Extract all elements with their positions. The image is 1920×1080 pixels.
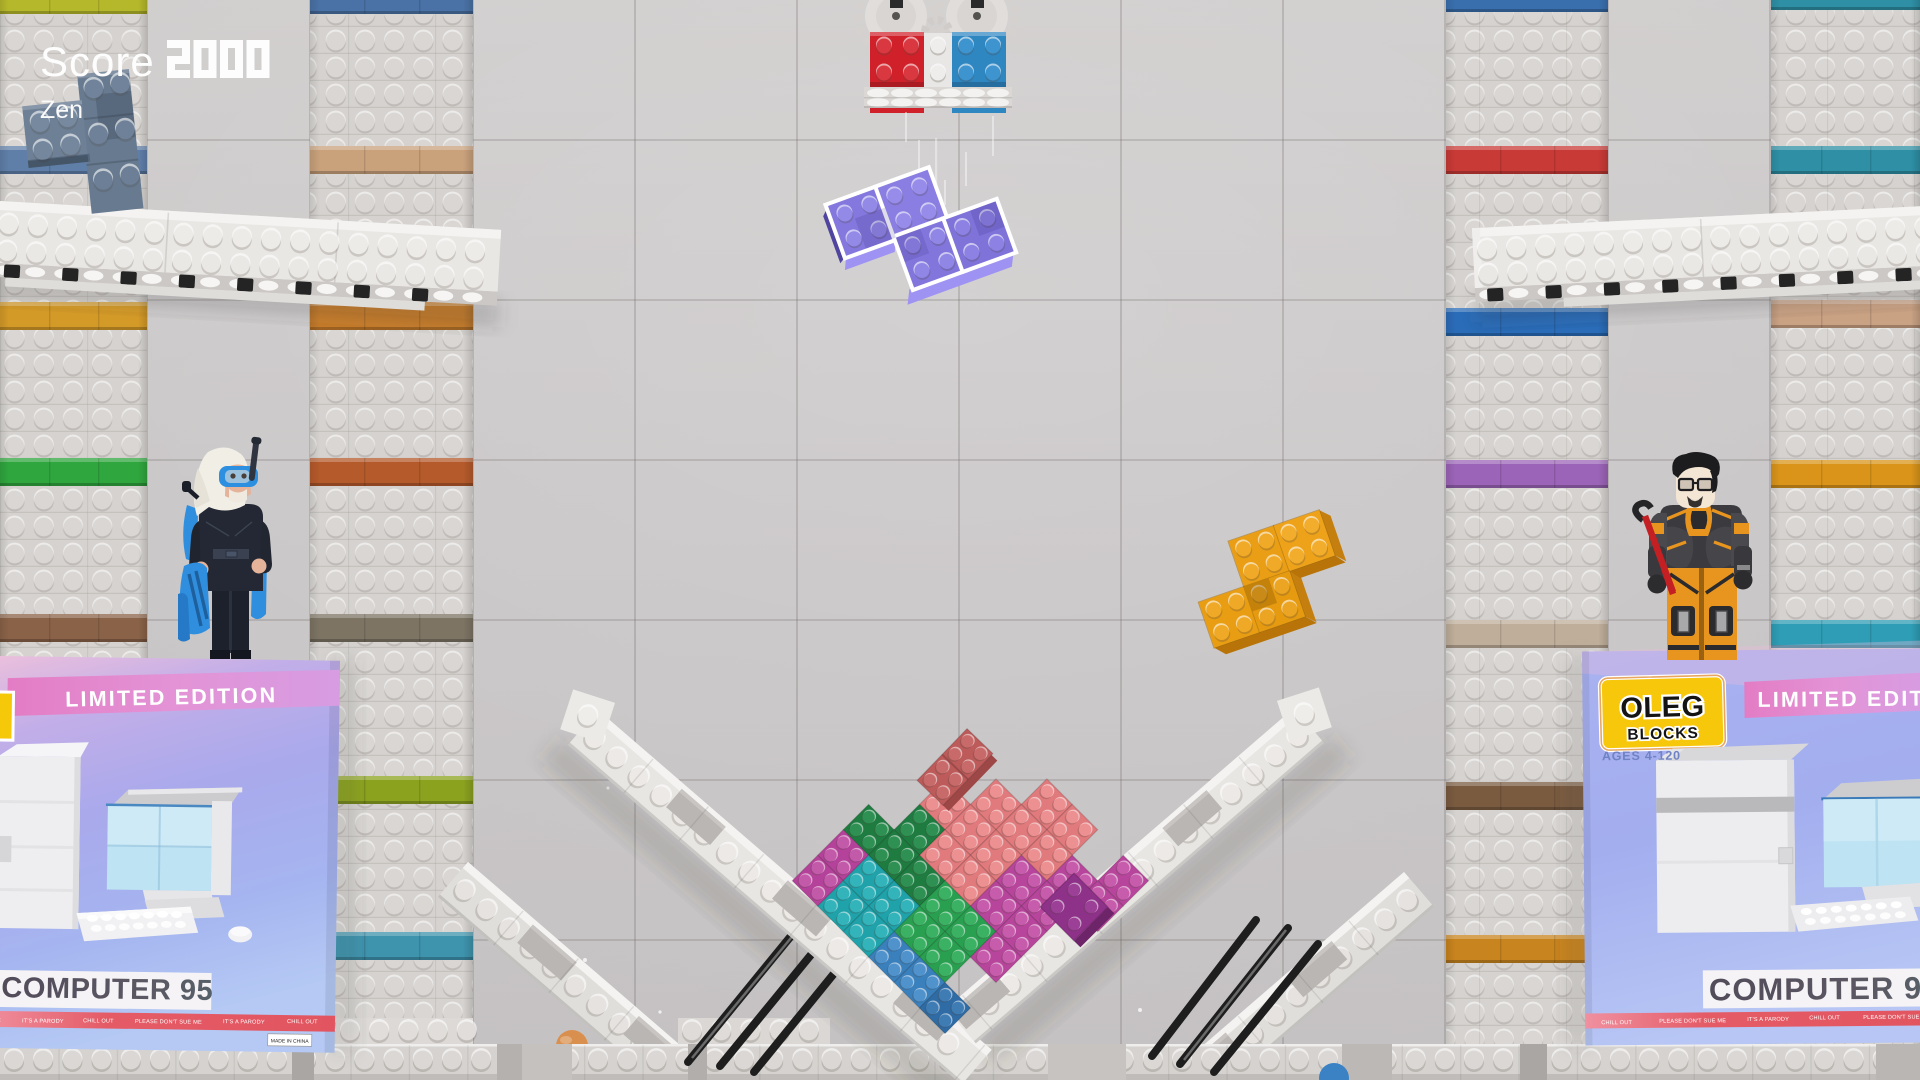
svg-text:MADE IN CHINA: MADE IN CHINA: [271, 1038, 310, 1045]
svg-text:LIMITED EDIT: LIMITED EDIT: [1757, 686, 1920, 711]
svg-text:COMPUTER 95: COMPUTER 95: [1709, 970, 1920, 1007]
svg-text:BLOCKS: BLOCKS: [1627, 725, 1699, 744]
svg-text:IT'S A PARODY: IT'S A PARODY: [22, 1018, 64, 1025]
svg-text:PLEASE DON'T SUE ME: PLEASE DON'T SUE ME: [135, 1019, 202, 1026]
svg-text:CHILL OUT: CHILL OUT: [287, 1019, 318, 1025]
svg-text:CHILL OUT: CHILL OUT: [1809, 1015, 1840, 1021]
svg-text:PLEASE DON'T SUE ME: PLEASE DON'T SUE ME: [1659, 1018, 1726, 1025]
svg-text:E: E: [0, 1018, 1, 1024]
svg-text:IT'S A PARODY: IT'S A PARODY: [1747, 1017, 1789, 1023]
svg-text:Score: Score: [40, 38, 155, 85]
svg-text:AGES 4-120: AGES 4-120: [1602, 749, 1681, 764]
svg-text:IT'S A PARODY: IT'S A PARODY: [223, 1019, 265, 1026]
svg-text:PLEASE DON'T SUE ME: PLEASE DON'T SUE ME: [1863, 1014, 1920, 1021]
svg-text:COMPUTER 95: COMPUTER 95: [1, 972, 213, 1007]
svg-text:LIMITED EDITION: LIMITED EDITION: [65, 683, 278, 711]
svg-text:OLEG: OLEG: [1620, 691, 1705, 725]
svg-text:CHILL OUT: CHILL OUT: [83, 1018, 114, 1024]
svg-text:CHILL OUT: CHILL OUT: [1601, 1020, 1632, 1026]
svg-text:Zen: Zen: [40, 96, 83, 124]
